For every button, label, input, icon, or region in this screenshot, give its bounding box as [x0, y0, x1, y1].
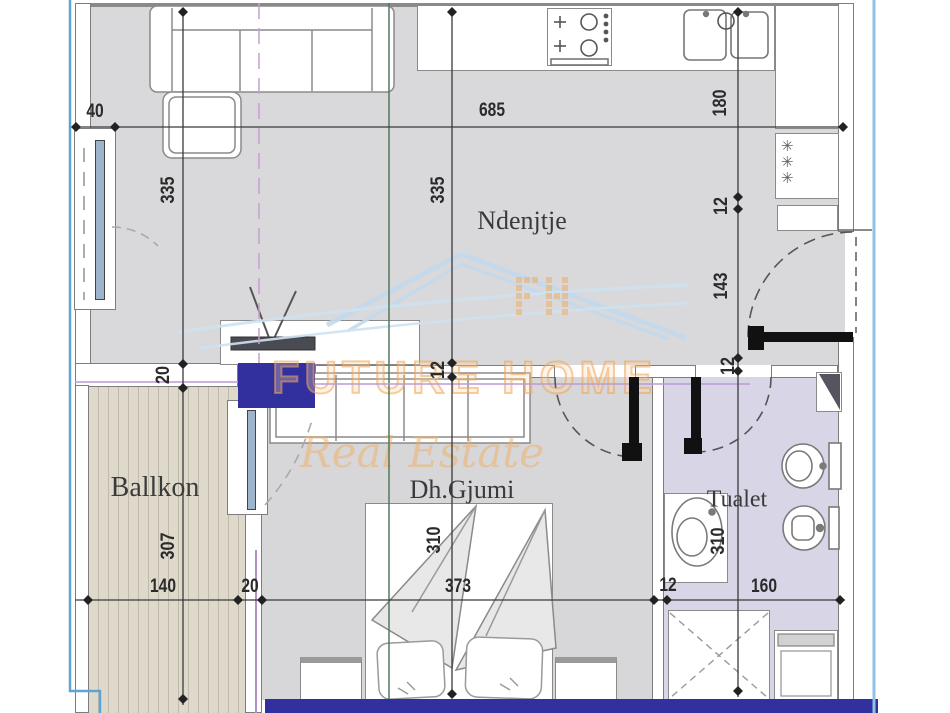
dim-bottom-20: 20	[241, 576, 258, 598]
dim-top-685: 685	[479, 100, 505, 122]
dim-right-180: 180	[710, 90, 732, 117]
dim-left-307: 307	[158, 533, 180, 560]
dim-bottom-140: 140	[150, 576, 176, 598]
stove-icon	[547, 8, 612, 66]
watermark-title: FUTURE HOME	[272, 352, 712, 404]
shower-tray	[668, 610, 770, 700]
dim-left-335: 335	[158, 177, 180, 204]
bedroom-bathroom-wall	[652, 377, 664, 700]
closet-symbol-icon: ✳✳✳	[781, 139, 799, 187]
floor-plan: ✳✳✳	[0, 0, 950, 713]
room-label-bedroom: Dh.Gjumi	[410, 475, 515, 505]
dim-right-310: 310	[708, 528, 730, 555]
right-exterior-wall-upper	[838, 3, 854, 232]
dim-right-12b: 12	[718, 357, 740, 375]
washing-machine-icon	[774, 630, 838, 700]
dim-left-20: 20	[153, 366, 175, 384]
room-label-balcony: Ballkon	[111, 472, 200, 504]
nightstand-right	[555, 657, 617, 701]
balcony-parapet	[75, 385, 89, 713]
living-window-glazing-icon	[95, 140, 105, 300]
corner-shelf	[816, 372, 842, 412]
room-label-bathroom: Tualet	[707, 487, 767, 514]
bed	[365, 503, 553, 700]
dim-bottom-12: 12	[659, 575, 676, 597]
dim-right-143: 143	[711, 273, 733, 300]
entry-cabinet	[777, 205, 838, 231]
dim-center-335: 335	[428, 177, 450, 204]
nightstand-left	[300, 657, 362, 701]
kitchen-tall-cabinet	[775, 5, 839, 129]
dim-center-12: 12	[428, 361, 450, 379]
dim-top-40: 40	[86, 101, 103, 123]
room-label-living: Ndenjtje	[477, 206, 567, 236]
dim-bottom-160: 160	[751, 576, 777, 598]
balcony-door-glazing-icon	[247, 410, 256, 510]
dim-right-12a: 12	[711, 197, 733, 215]
dim-center-310: 310	[424, 527, 446, 554]
dim-bottom-373: 373	[445, 576, 471, 598]
bottom-structural-wall	[265, 699, 878, 713]
watermark-subtitle: Real Estate	[300, 428, 600, 477]
